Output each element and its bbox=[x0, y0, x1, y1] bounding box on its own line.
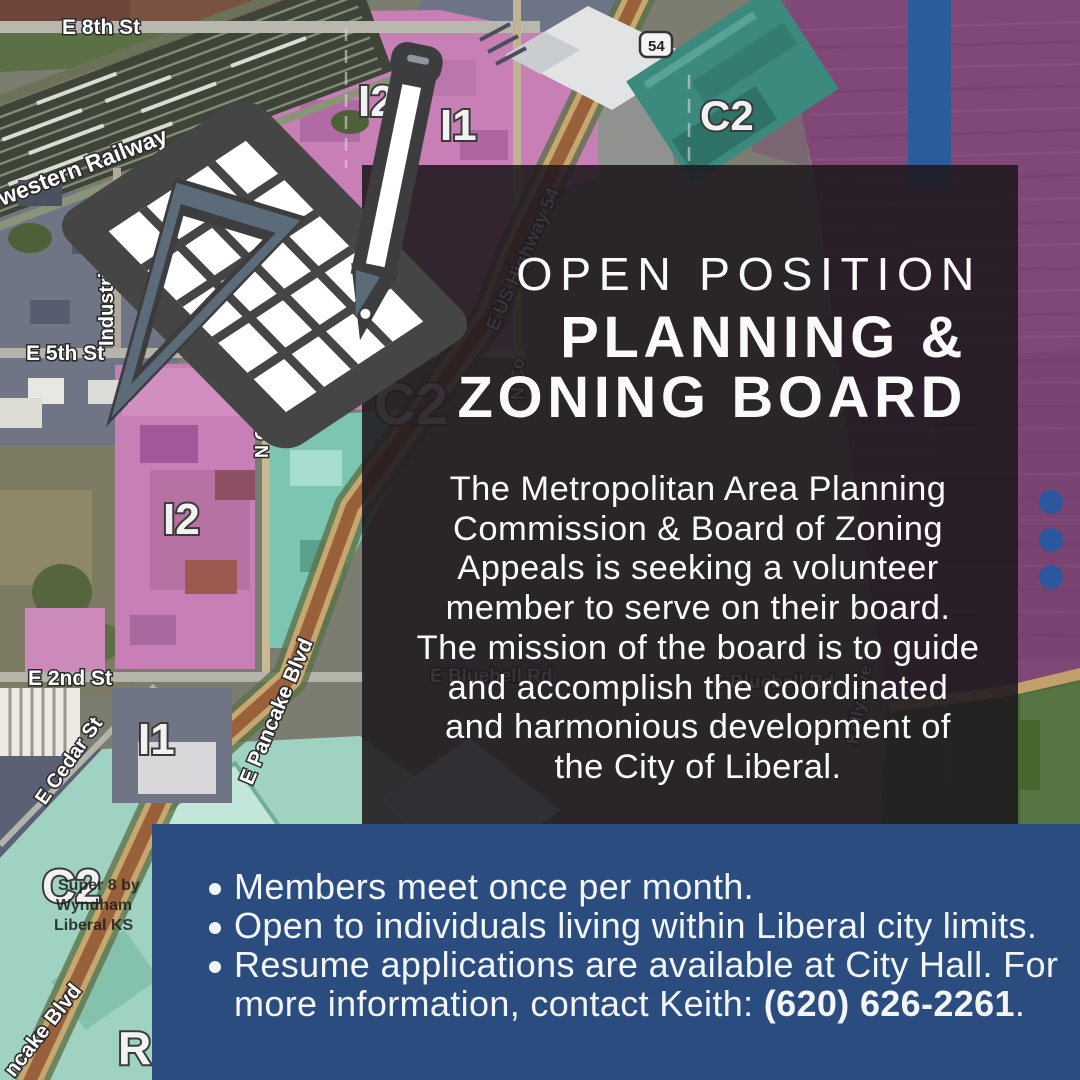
svg-text:I1: I1 bbox=[138, 715, 175, 764]
svg-text:R: R bbox=[118, 1022, 151, 1074]
svg-text:C2: C2 bbox=[700, 92, 754, 139]
svg-text:Liberal KS: Liberal KS bbox=[54, 917, 133, 934]
svg-text:E 8th St: E 8th St bbox=[62, 16, 140, 39]
svg-text:E 5th St: E 5th St bbox=[26, 342, 104, 365]
svg-text:I1: I1 bbox=[440, 101, 477, 150]
svg-text:Wyndham: Wyndham bbox=[56, 897, 132, 914]
svg-text:I2: I2 bbox=[163, 495, 200, 544]
svg-text:E 2nd St: E 2nd St bbox=[28, 667, 112, 690]
svg-text:54: 54 bbox=[648, 38, 665, 55]
svg-text:Super 8 by: Super 8 by bbox=[58, 877, 140, 894]
